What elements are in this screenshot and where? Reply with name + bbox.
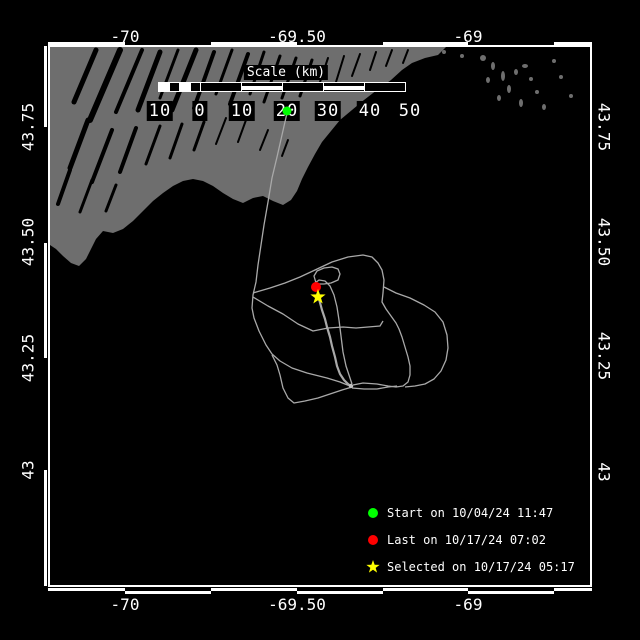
map-area[interactable]: Scale (km) 10 0 10 20 30 40 50 (48, 45, 592, 587)
border-zebra-bottom (554, 588, 592, 591)
track-layer[interactable] (50, 47, 590, 585)
border-zebra-bottom (383, 588, 468, 591)
border-zebra-left (44, 46, 47, 127)
axis-label-bottom-lon: -69.50 (268, 595, 326, 614)
border-zebra-bottom (48, 588, 125, 591)
axis-label-left-lat: 43.75 (19, 103, 38, 151)
selected-marker-star[interactable] (310, 289, 325, 304)
axis-label-bottom-lon: -70 (111, 595, 140, 614)
track-path (252, 113, 448, 403)
axis-label-right-lat: 43 (595, 462, 614, 481)
border-zebra-bottom (211, 588, 297, 591)
axis-label-bottom-lon: -69 (454, 595, 483, 614)
axis-label-left-lat: 43.25 (19, 334, 38, 382)
axis-label-left-lat: 43 (19, 460, 38, 479)
border-zebra-bottom (468, 591, 554, 594)
track-node-blob (349, 384, 353, 388)
start-marker[interactable] (283, 107, 292, 116)
tracking-map-screen: -70 -69.50 -69 -70 -69.50 -69 43.75 43.5… (0, 0, 640, 640)
last-marker[interactable] (311, 282, 321, 292)
border-zebra-bottom (297, 591, 383, 594)
border-zebra-left (44, 470, 47, 586)
axis-label-right-lat: 43.25 (595, 332, 614, 380)
border-zebra-bottom (125, 591, 211, 594)
axis-label-right-lat: 43.50 (595, 218, 614, 266)
axis-label-right-lat: 43.75 (595, 103, 614, 151)
axis-label-left-lat: 43.50 (19, 218, 38, 266)
border-zebra-left (44, 243, 47, 358)
